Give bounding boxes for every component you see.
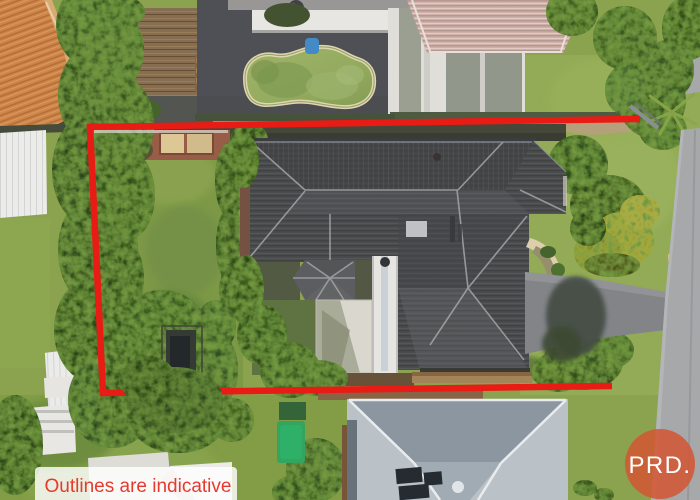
svg-text:Outlines are indicative: Outlines are indicative [45,476,232,497]
svg-text:PRD.: PRD. [629,452,692,479]
